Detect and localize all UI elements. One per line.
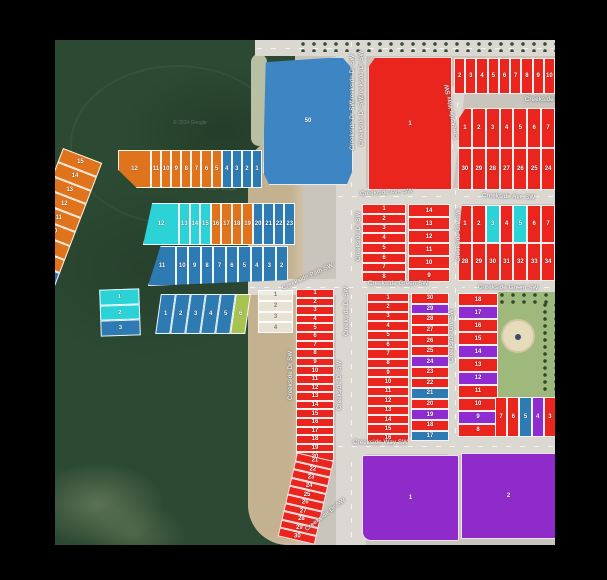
lot-3[interactable]: 3 xyxy=(465,58,476,94)
lot-number-label: 18 xyxy=(234,221,241,227)
lot-5[interactable]: 5 xyxy=(519,397,531,437)
lot-3[interactable]: 3 xyxy=(258,312,293,323)
lot-8[interactable]: 8 xyxy=(201,246,213,286)
lot-3[interactable]: 3 xyxy=(367,312,409,321)
lot-number-label: 4 xyxy=(386,323,389,329)
lot-3[interactable]: 3 xyxy=(296,306,334,315)
lot-2[interactable]: 2 xyxy=(367,302,409,311)
lot-14[interactable]: 14 xyxy=(296,401,334,410)
lot-number-label: 11 xyxy=(385,388,391,394)
lot-18[interactable]: 18 xyxy=(458,293,498,306)
lot-5[interactable]: 5 xyxy=(238,246,250,286)
lot-3[interactable]: 3 xyxy=(100,320,141,337)
lot-number-label: 28 xyxy=(427,316,434,322)
lot-12[interactable]: 12 xyxy=(367,396,409,405)
lot-3[interactable]: 3 xyxy=(232,150,242,188)
lot-number-label: 10 xyxy=(179,263,186,269)
lot-number-label: 7 xyxy=(546,125,549,131)
lot-32[interactable]: 32 xyxy=(513,243,527,281)
lot-group-ne-block-row1: 1234567 xyxy=(458,108,555,148)
lot-16[interactable]: 16 xyxy=(296,418,334,427)
lot-number-label: 6 xyxy=(503,73,506,79)
lot-6[interactable]: 6 xyxy=(226,246,238,286)
lot-4[interactable]: 4 xyxy=(362,233,406,243)
lot-5[interactable]: 5 xyxy=(212,150,222,188)
lot-6[interactable]: 6 xyxy=(499,58,510,94)
lot-3[interactable]: 3 xyxy=(263,246,275,286)
lot-13[interactable]: 13 xyxy=(458,358,498,371)
lot-number-label: 1 xyxy=(382,206,385,212)
lot-number-label: 9 xyxy=(175,166,178,172)
lot-number-label: 27 xyxy=(300,508,307,514)
lot-30[interactable]: 30 xyxy=(486,243,500,281)
lot-number-label: 3 xyxy=(548,414,551,420)
lot-number-label: 2 xyxy=(179,311,182,317)
lot-8[interactable]: 8 xyxy=(521,58,532,94)
lot-29[interactable]: 29 xyxy=(472,243,486,281)
lot-number-label: 16 xyxy=(312,419,319,425)
lot-number-label: 18 xyxy=(475,297,482,303)
lot-number-label: 12 xyxy=(61,201,68,207)
lot-number-label: 26 xyxy=(427,338,434,344)
lot-9[interactable]: 9 xyxy=(188,246,200,286)
street-label-creekside-way-sw: Creekside Way SW xyxy=(525,97,555,103)
lot-number-label: 13 xyxy=(475,362,482,368)
lot-number-label: 4 xyxy=(480,73,483,79)
lot-13[interactable]: 13 xyxy=(367,406,409,415)
lot-number-label: 4 xyxy=(313,316,316,322)
lot-2[interactable]: 2 xyxy=(296,298,334,307)
lot-10[interactable]: 10 xyxy=(408,256,450,269)
street-label-creekside-dr-sw: Creekside Dr SW xyxy=(288,336,294,400)
lot-number-label: 6 xyxy=(386,342,389,348)
lot-18[interactable]: 18 xyxy=(296,435,334,444)
lot-group-e-block-row2: 28293031323334 xyxy=(458,243,555,281)
lot-2[interactable]: 2 xyxy=(258,301,293,312)
lot-2[interactable]: 2 xyxy=(472,108,486,148)
lot-25[interactable]: 25 xyxy=(411,346,449,357)
lot-17[interactable]: 17 xyxy=(411,431,449,442)
lot-number-label: 22 xyxy=(276,221,283,227)
lot-6[interactable]: 6 xyxy=(201,150,211,188)
lot-number-label: 7 xyxy=(514,73,517,79)
lot-18[interactable]: 18 xyxy=(411,420,449,431)
lot-number-label: 13 xyxy=(385,407,392,413)
lot-number-label: 5 xyxy=(243,263,246,269)
lot-number-label: 12 xyxy=(131,166,138,172)
lot-17[interactable]: 17 xyxy=(221,203,232,245)
lot-13[interactable]: 13 xyxy=(296,392,334,401)
lot-number-label: 5 xyxy=(386,332,389,338)
lot-7[interactable]: 7 xyxy=(541,108,555,148)
lot-23[interactable]: 23 xyxy=(411,367,449,378)
lot-number-label: 4 xyxy=(382,235,385,241)
street-label-creekside-dr-sw: Creekside Dr SW xyxy=(359,102,365,146)
lot-number-label: 25 xyxy=(427,348,434,354)
lot-number-label: 25 xyxy=(303,491,310,497)
lot-number-label: 9 xyxy=(427,273,430,279)
lot-20[interactable]: 20 xyxy=(411,399,449,410)
lot-11[interactable]: 11 xyxy=(367,387,409,396)
lot-19[interactable]: 19 xyxy=(296,444,334,453)
lot-14[interactable]: 14 xyxy=(458,345,498,358)
lot-4[interactable]: 4 xyxy=(367,321,409,330)
lot-17[interactable]: 17 xyxy=(296,427,334,436)
lot-number-label: 11 xyxy=(153,166,159,172)
lot-number-label: 2 xyxy=(458,73,461,79)
lot-number-label: 5 xyxy=(215,166,218,172)
lot-25[interactable]: 25 xyxy=(527,148,541,190)
lot-7[interactable]: 7 xyxy=(495,397,507,437)
lot-11[interactable]: 11 xyxy=(458,385,498,398)
lot-number-label: 26 xyxy=(302,500,309,506)
lot-number-label: 2 xyxy=(274,303,277,309)
lot-18[interactable]: 18 xyxy=(232,203,243,245)
lot-group-ne-row: 2345678910 xyxy=(454,58,555,94)
street-label-creekside-dr-sw: Creekside Dr SW xyxy=(350,106,356,150)
lot-12[interactable]: 12 xyxy=(408,230,450,243)
lot-9[interactable]: 9 xyxy=(533,58,544,94)
lot-14[interactable]: 14 xyxy=(190,203,201,245)
lot-19[interactable]: 19 xyxy=(242,203,253,245)
lot-number-label: 6 xyxy=(205,166,208,172)
lot-number-label: 34 xyxy=(545,259,552,265)
lot-24[interactable]: 24 xyxy=(541,148,555,190)
lot-28[interactable]: 28 xyxy=(486,148,500,190)
lot-number-label: 3 xyxy=(382,225,385,231)
lot-4[interactable]: 4 xyxy=(476,58,487,94)
lot-number-label: 2 xyxy=(382,216,385,222)
lot-number-label: 18 xyxy=(312,436,319,442)
lot-10[interactable]: 10 xyxy=(176,246,188,286)
lot-15[interactable]: 15 xyxy=(458,332,498,345)
playground-circle xyxy=(501,319,535,353)
street-label-creekside-dr-sw: Creekside Dr SW xyxy=(350,58,356,104)
lot-number-label: 17 xyxy=(427,433,434,439)
map-canvas[interactable]: © 2024 Google © 2024 Google 50 1 1 2 151… xyxy=(55,40,555,545)
lot-number-label: 8 xyxy=(205,263,208,269)
lot-23[interactable]: 23 xyxy=(284,203,295,245)
lot-7[interactable]: 7 xyxy=(213,246,225,286)
lot-number-label: 9 xyxy=(476,414,479,420)
lot-group-mid-block-col2: 14131211109 xyxy=(408,204,450,282)
south-parcel-2-label: 2 xyxy=(507,493,510,499)
lot-1[interactable]: 1 xyxy=(258,290,293,301)
lot-2[interactable]: 2 xyxy=(100,304,141,321)
lot-33[interactable]: 33 xyxy=(527,243,541,281)
lot-11[interactable]: 11 xyxy=(296,375,334,384)
lot-10[interactable]: 10 xyxy=(458,398,498,411)
lot-30[interactable]: 30 xyxy=(458,148,472,190)
lot-4[interactable]: 4 xyxy=(222,150,232,188)
lot-9[interactable]: 9 xyxy=(367,368,409,377)
lot-22[interactable]: 22 xyxy=(411,378,449,389)
lot-1[interactable]: 1 xyxy=(362,204,406,214)
park-trees-right xyxy=(542,302,555,392)
lot-number-label: 3 xyxy=(313,307,316,313)
lot-3[interactable]: 3 xyxy=(544,397,555,437)
lot-7[interactable]: 7 xyxy=(541,205,555,243)
lot-number-label: 7 xyxy=(218,263,221,269)
lot-6[interactable]: 6 xyxy=(507,397,519,437)
lot-number-label: 4 xyxy=(225,166,228,172)
lot-8[interactable]: 8 xyxy=(458,424,498,437)
lot-27[interactable]: 27 xyxy=(500,148,514,190)
pond-parcel-50[interactable]: 50 xyxy=(263,57,353,185)
street-label-creekside-grv-sw: Creekside Grv SW xyxy=(456,214,462,262)
roadside-trees xyxy=(300,41,555,52)
lot-number-label: 22 xyxy=(309,466,316,472)
lot-number-label: 6 xyxy=(512,414,515,420)
lot-number-label: 20 xyxy=(255,221,262,227)
lot-6[interactable]: 6 xyxy=(527,108,541,148)
lot-9[interactable]: 9 xyxy=(296,358,334,367)
lot-15[interactable]: 15 xyxy=(367,424,409,433)
lot-number-label: 25 xyxy=(531,166,538,172)
street-label-creekside-green-sw: Creekside Green SW xyxy=(478,284,538,291)
lot-number-label: 3 xyxy=(491,221,494,227)
lot-number-label: 2 xyxy=(313,299,316,305)
lot-number-label: 14 xyxy=(312,402,319,408)
lot-number-label: 33 xyxy=(531,259,538,265)
street-label-creekside-dr-sw: Creekside Dr SW xyxy=(356,215,362,261)
lot-4[interactable]: 4 xyxy=(258,322,293,333)
lot-group-small-row: 123456 xyxy=(155,294,251,334)
lot-number-label: 6 xyxy=(313,333,316,339)
lot-7[interactable]: 7 xyxy=(362,263,406,273)
lot-2[interactable]: 2 xyxy=(242,150,252,188)
lot-number-label: 7 xyxy=(546,221,549,227)
lot-3[interactable]: 3 xyxy=(486,205,500,243)
ne-large-parcel-1[interactable]: 1 xyxy=(368,57,452,190)
lot-10[interactable]: 10 xyxy=(296,366,334,375)
lot-number-label: 10 xyxy=(312,368,319,374)
lot-number-label: 9 xyxy=(193,263,196,269)
lot-2[interactable]: 2 xyxy=(276,246,288,286)
lot-number-label: 19 xyxy=(244,221,251,227)
lot-7[interactable]: 7 xyxy=(510,58,521,94)
lot-number-label: 5 xyxy=(524,414,527,420)
lot-number-label: 16 xyxy=(213,221,220,227)
lot-number-label: 7 xyxy=(386,351,389,357)
lot-2[interactable]: 2 xyxy=(454,58,465,94)
lot-number-label: 13 xyxy=(312,393,319,399)
lot-30[interactable]: 30 xyxy=(411,293,449,304)
lot-12[interactable]: 12 xyxy=(296,384,334,393)
lot-4[interactable]: 4 xyxy=(532,397,544,437)
lot-16[interactable]: 16 xyxy=(458,319,498,332)
lot-number-label: 12 xyxy=(158,221,165,227)
lot-10[interactable]: 10 xyxy=(544,58,555,94)
lot-4[interactable]: 4 xyxy=(296,315,334,324)
lot-20[interactable]: 20 xyxy=(253,203,264,245)
lot-number-label: 6 xyxy=(533,125,536,131)
lot-5[interactable]: 5 xyxy=(513,205,527,243)
lot-number-label: 14 xyxy=(385,417,392,423)
lot-number-label: 10 xyxy=(475,401,482,407)
lot-number-label: 30 xyxy=(462,166,469,172)
lot-4[interactable]: 4 xyxy=(500,205,514,243)
lot-5[interactable]: 5 xyxy=(488,58,499,94)
lot-number-label: 6 xyxy=(230,263,233,269)
lot-21[interactable]: 21 xyxy=(263,203,274,245)
lot-26[interactable]: 26 xyxy=(411,335,449,346)
lot-group-se-col: 18171615141312111098 xyxy=(458,293,498,437)
lot-number-label: 29 xyxy=(296,525,303,531)
lot-15[interactable]: 15 xyxy=(200,203,211,245)
lot-number-label: 4 xyxy=(255,263,258,269)
lot-number-label: 21 xyxy=(265,221,272,227)
lot-1[interactable]: 1 xyxy=(296,289,334,298)
pond-parcel-label: 50 xyxy=(305,118,312,124)
lot-13[interactable]: 13 xyxy=(408,217,450,230)
lot-5[interactable]: 5 xyxy=(367,331,409,340)
lot-4[interactable]: 4 xyxy=(251,246,263,286)
lot-number-label: 24 xyxy=(545,166,552,172)
lot-number-label: 1 xyxy=(164,311,167,317)
lot-number-label: 2 xyxy=(245,166,248,172)
lot-number-label: 7 xyxy=(382,264,385,270)
lot-29[interactable]: 29 xyxy=(472,148,486,190)
lot-15[interactable]: 15 xyxy=(296,409,334,418)
lot-29[interactable]: 29 xyxy=(411,304,449,315)
lot-group-strip-upper: 1234567891011121314151617181920 xyxy=(296,289,334,461)
lot-1[interactable]: 1 xyxy=(252,150,262,188)
lot-10[interactable]: 10 xyxy=(161,150,171,188)
lot-17[interactable]: 17 xyxy=(458,306,498,319)
lot-9[interactable]: 9 xyxy=(458,411,498,424)
lot-number-label: 28 xyxy=(489,166,496,172)
lot-number-label: 5 xyxy=(382,245,385,251)
lot-number-label: 3 xyxy=(194,311,197,317)
lot-number-label: 9 xyxy=(386,370,389,376)
lot-6[interactable]: 6 xyxy=(527,205,541,243)
lot-3[interactable]: 3 xyxy=(362,224,406,234)
lot-11[interactable]: 11 xyxy=(408,243,450,256)
lot-8[interactable]: 8 xyxy=(181,150,191,188)
lot-group-e-block-row1: 1234567 xyxy=(458,205,555,243)
lot-number-label: 9 xyxy=(536,73,539,79)
lot-number-label: 8 xyxy=(386,360,389,366)
lot-5[interactable]: 5 xyxy=(513,108,527,148)
lot-5[interactable]: 5 xyxy=(296,323,334,332)
lot-7[interactable]: 7 xyxy=(296,341,334,350)
lot-number-label: 23 xyxy=(286,221,293,227)
lot-number-label: 14 xyxy=(426,208,433,214)
lot-14[interactable]: 14 xyxy=(367,415,409,424)
lot-number-label: 1 xyxy=(386,295,389,301)
lot-number-label: 15 xyxy=(385,426,392,432)
lot-27[interactable]: 27 xyxy=(411,325,449,336)
lot-11[interactable]: 11 xyxy=(151,150,161,188)
lot-number-label: 12 xyxy=(312,385,319,391)
lot-number-label: 3 xyxy=(235,166,238,172)
lot-number-label: 8 xyxy=(382,274,385,280)
lot-number-label: 29 xyxy=(475,166,482,172)
lot-group-white-stack: 1234 xyxy=(258,290,293,333)
lot-number-label: 5 xyxy=(492,73,495,79)
lot-number-label: 6 xyxy=(533,221,536,227)
street-label-creekside-dr-sw: Creekside Dr SW xyxy=(337,350,343,410)
lot-2[interactable]: 2 xyxy=(472,205,486,243)
lot-6[interactable]: 6 xyxy=(296,332,334,341)
street-label-creekside-dr-sw: Creekside Dr SW xyxy=(359,54,365,100)
lot-number-label: 5 xyxy=(224,311,227,317)
lot-21[interactable]: 21 xyxy=(411,388,449,399)
lot-number-label: 14 xyxy=(71,173,78,179)
lot-number-label: 1 xyxy=(255,166,258,172)
lot-number-label: 26 xyxy=(517,166,524,172)
lot-number-label: 2 xyxy=(280,263,283,269)
lot-number-label: 14 xyxy=(191,221,198,227)
lot-number-label: 24 xyxy=(305,483,312,489)
lot-16[interactable]: 16 xyxy=(211,203,222,245)
lot-number-label: 8 xyxy=(525,73,528,79)
south-parcel-2[interactable]: 2 xyxy=(461,453,555,539)
lot-26[interactable]: 26 xyxy=(513,148,527,190)
lot-number-label: 5 xyxy=(313,325,316,331)
lot-number-label: 29 xyxy=(427,306,434,312)
lot-8[interactable]: 8 xyxy=(367,359,409,368)
lot-12[interactable]: 12 xyxy=(458,372,498,385)
lot-number-label: 29 xyxy=(475,259,482,265)
lot-number-label: 21 xyxy=(427,390,434,396)
lot-31[interactable]: 31 xyxy=(500,243,514,281)
lot-group-s-block-col1: 12345678910111213141516 xyxy=(367,293,409,443)
lot-group-south-row: 111098765432 xyxy=(148,246,288,286)
lot-19[interactable]: 19 xyxy=(411,409,449,420)
lot-4[interactable]: 4 xyxy=(500,108,514,148)
lot-7[interactable]: 7 xyxy=(367,349,409,358)
lot-6[interactable]: 6 xyxy=(367,340,409,349)
lot-number-label: 13 xyxy=(66,187,73,193)
lot-number-label: 2 xyxy=(386,304,389,310)
lot-10[interactable]: 10 xyxy=(367,377,409,386)
lot-34[interactable]: 34 xyxy=(541,243,555,281)
lot-13[interactable]: 13 xyxy=(179,203,190,245)
lot-number-label: 5 xyxy=(519,125,522,131)
lot-28[interactable]: 28 xyxy=(411,314,449,325)
lot-24[interactable]: 24 xyxy=(411,356,449,367)
lot-group-s-block-col2: 3029282726252423222120191817 xyxy=(411,293,449,441)
lot-5[interactable]: 5 xyxy=(362,243,406,253)
lot-number-label: 1 xyxy=(463,125,466,131)
lot-number-label: 7 xyxy=(195,166,198,172)
lot-1[interactable]: 1 xyxy=(367,293,409,302)
lot-number-label: 4 xyxy=(505,125,508,131)
lot-number-label: 9 xyxy=(313,359,316,365)
lot-number-label: 28 xyxy=(462,259,469,265)
lot-22[interactable]: 22 xyxy=(274,203,285,245)
lot-number-label: 12 xyxy=(475,375,482,381)
lot-2[interactable]: 2 xyxy=(362,214,406,224)
lot-number-label: 16 xyxy=(475,323,482,329)
lot-number-label: 27 xyxy=(427,327,434,333)
lot-group-small-stack: 123 xyxy=(99,288,141,336)
lot-14[interactable]: 14 xyxy=(408,204,450,217)
lot-group-ne-block-row2: 30292827262524 xyxy=(458,148,555,190)
south-parcel-1[interactable]: 1 xyxy=(362,455,459,541)
lot-number-label: 13 xyxy=(181,221,188,227)
lot-3[interactable]: 3 xyxy=(486,108,500,148)
lot-number-label: 17 xyxy=(475,310,482,316)
lot-number-label: 3 xyxy=(119,325,123,331)
lot-8[interactable]: 8 xyxy=(296,349,334,358)
lot-9[interactable]: 9 xyxy=(171,150,181,188)
lot-1[interactable]: 1 xyxy=(99,288,140,305)
lot-7[interactable]: 7 xyxy=(191,150,201,188)
lot-6[interactable]: 6 xyxy=(362,253,406,263)
